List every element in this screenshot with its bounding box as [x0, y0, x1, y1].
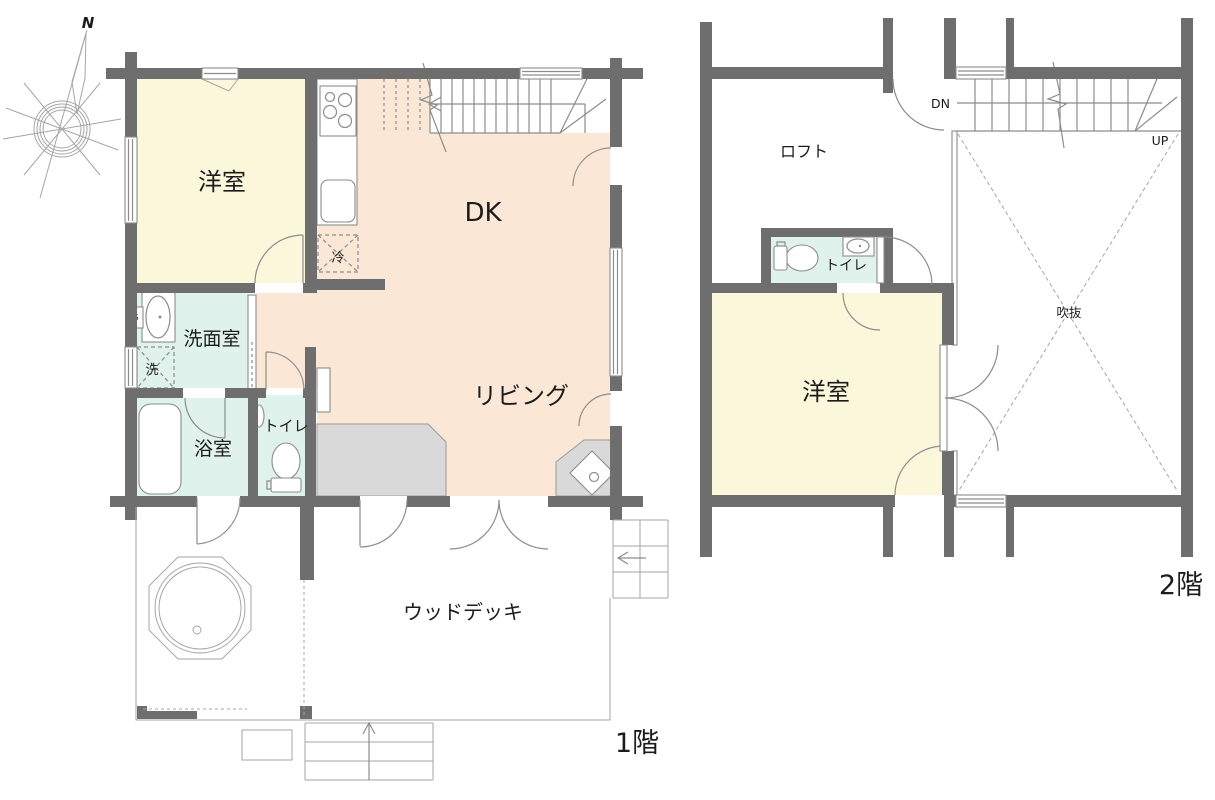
kitchen-counter — [317, 79, 357, 225]
wood-deck-label: ウッドデッキ — [403, 600, 523, 624]
floor1-washroom-label: 洗面室 — [183, 328, 240, 350]
window-dk-right — [610, 248, 622, 376]
stairs-up-label: UP — [1152, 133, 1169, 148]
window-stairs-top — [520, 68, 582, 79]
opening-dk-right-door — [610, 147, 622, 185]
window-washroom-left — [125, 347, 137, 388]
opening-living-right-door — [610, 391, 622, 426]
opening-deck-door-b — [360, 496, 407, 507]
atrium-void-label: 吹抜 — [1056, 305, 1082, 320]
compass-icon: N — [3, 14, 121, 198]
floor2-caption: 2階 — [1159, 570, 1203, 601]
refrigerator-label: 冷 — [331, 251, 344, 266]
kitchen-sink-icon — [321, 180, 355, 222]
washroom-sliding-door — [248, 295, 256, 390]
window-floor2-top — [956, 67, 1006, 79]
stairs-down-label: DN — [931, 96, 950, 111]
floorplan-canvas: N — [0, 0, 1215, 800]
outdoor-bath-icon — [149, 557, 251, 659]
opening-deck-door-a — [197, 496, 240, 507]
stepping-stone — [242, 730, 292, 760]
floor1-dk-label: DK — [464, 198, 502, 228]
opening-bedroom2-bottom-door — [895, 495, 944, 507]
wood-deck-outline — [136, 507, 668, 780]
compass-north-label: N — [82, 14, 95, 32]
washing-machine-label: 洗 — [145, 363, 158, 378]
floor2-toilet-label: トイレ — [825, 258, 867, 274]
floor1-plan: 冷 PS 洗 — [106, 52, 668, 780]
living-shelf — [317, 368, 330, 412]
opening-loft-top-door — [893, 67, 944, 79]
floor2-bedroom-label: 洋室 — [802, 378, 850, 406]
loft-label: ロフト — [780, 142, 828, 161]
vanity-sink-icon — [142, 292, 175, 342]
floor1-bedroom-label: 洋室 — [198, 168, 246, 196]
deck-double-door — [450, 500, 548, 549]
floor1-caption: 1階 — [615, 728, 659, 759]
floor1-toilet-label: トイレ — [263, 417, 308, 435]
floor1-living-label: リビング — [473, 382, 569, 410]
bathtub-icon — [139, 404, 181, 494]
window-bedroom-left — [125, 137, 137, 223]
floorplan-drawing: N — [0, 0, 1215, 800]
deck-bottom-steps — [305, 723, 433, 780]
bedroom2-double-door — [940, 345, 998, 451]
stove-icon — [320, 86, 356, 136]
floor2-plan: ロフト DN UP トイレ 洋室 吹抜 2階 — [700, 18, 1203, 601]
deck-door-b — [360, 500, 407, 547]
entry-floor-area — [317, 424, 446, 496]
deck-side-steps — [613, 520, 668, 598]
floor2-toilet-sink-icon — [843, 237, 874, 256]
window-floor2-bottom — [956, 495, 1006, 507]
floor1-bathroom-label: 浴室 — [194, 438, 232, 460]
